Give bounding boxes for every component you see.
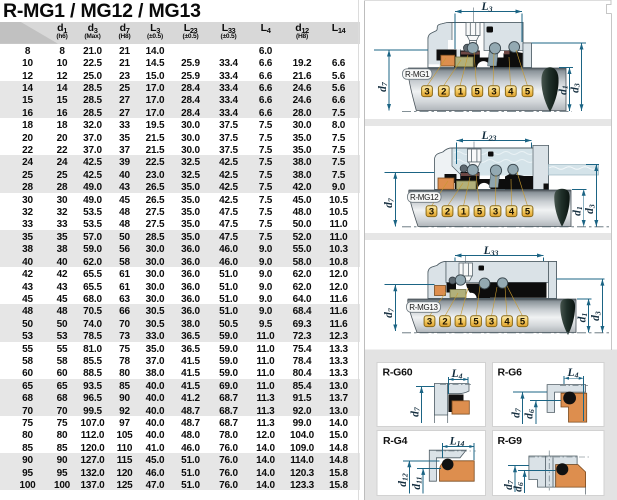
svg-text:1: 1 <box>461 206 467 217</box>
svg-text:3: 3 <box>429 206 434 217</box>
svg-text:3: 3 <box>493 206 498 217</box>
svg-text:R-MG13: R-MG13 <box>409 303 438 312</box>
svg-text:1: 1 <box>458 86 464 97</box>
svg-text:3: 3 <box>489 316 494 327</box>
svg-text:4: 4 <box>504 316 510 327</box>
svg-text:R-G9: R-G9 <box>498 435 523 447</box>
svg-text:5: 5 <box>477 206 483 217</box>
svg-text:R-MG12: R-MG12 <box>410 193 439 202</box>
svg-text:R-G6: R-G6 <box>498 367 523 379</box>
svg-text:5: 5 <box>525 206 531 217</box>
svg-text:2: 2 <box>441 86 446 97</box>
svg-text:2: 2 <box>445 206 450 217</box>
svg-text:4: 4 <box>508 86 514 97</box>
svg-text:5: 5 <box>475 86 481 97</box>
svg-text:3: 3 <box>427 316 432 327</box>
svg-text:3: 3 <box>491 86 496 97</box>
svg-text:5: 5 <box>520 316 526 327</box>
svg-text:5: 5 <box>525 86 531 97</box>
svg-text:R-G60: R-G60 <box>383 367 413 379</box>
svg-text:4: 4 <box>509 206 515 217</box>
svg-text:3: 3 <box>424 86 429 97</box>
svg-text:5: 5 <box>473 316 479 327</box>
svg-text:R-G4: R-G4 <box>383 435 408 447</box>
svg-text:1: 1 <box>458 316 464 327</box>
svg-text:2: 2 <box>442 316 447 327</box>
svg-text:R-MG1: R-MG1 <box>405 70 430 79</box>
